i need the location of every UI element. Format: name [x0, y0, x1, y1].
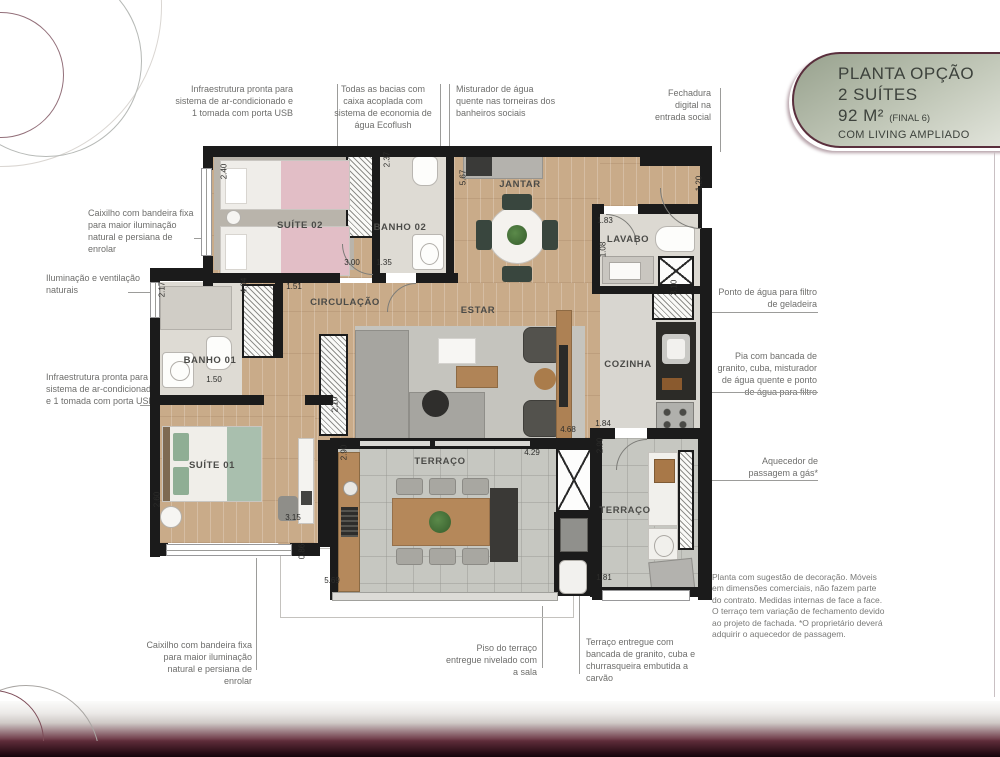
side-desk	[456, 366, 498, 388]
room-label-suite02: SUÍTE 02	[255, 220, 345, 231]
sink	[412, 234, 444, 270]
chair	[476, 220, 492, 250]
dimension: 2.10	[331, 392, 340, 418]
room-label-cozinha: COZINHA	[588, 359, 668, 370]
dimension: 3.00	[339, 258, 365, 267]
dimension: 1.08	[599, 237, 608, 263]
dimension: 0.86	[298, 539, 307, 565]
dimension: 3.10	[670, 275, 679, 301]
callout-infra-suite01: Infraestrutura pronta para sistema de ar…	[46, 372, 158, 408]
wall	[305, 395, 333, 405]
bed-suite02	[220, 160, 350, 210]
callout-bacias: Todas as bacias com caixa acoplada com s…	[330, 84, 436, 132]
pillow	[173, 467, 189, 495]
wall	[203, 146, 712, 157]
callout-caixilho-suite01: Caixilho com bandeira fixa para maior il…	[140, 640, 252, 688]
badge-area-note: (FINAL 6)	[889, 113, 930, 124]
badge-area: 92 M² (FINAL 6)	[838, 106, 1000, 126]
closet-suite01	[319, 334, 348, 436]
window-suite02	[201, 168, 212, 256]
bed-blanket	[281, 227, 349, 275]
wall	[592, 286, 700, 294]
coffee-table	[438, 338, 476, 364]
chair	[462, 548, 489, 565]
dimension: 1.50	[201, 375, 227, 384]
terrace-glass-rail	[332, 592, 558, 601]
column-window	[560, 518, 588, 552]
item	[654, 459, 675, 483]
bed-blanket	[281, 161, 349, 209]
room-label-banho01: BANHO 01	[170, 355, 250, 366]
callout-line	[712, 312, 818, 313]
tanque	[648, 528, 678, 560]
cuba	[343, 481, 358, 496]
lavabo-counter	[602, 256, 654, 284]
sliding-door	[360, 441, 430, 446]
basin	[420, 243, 439, 265]
wall	[647, 428, 700, 439]
basin	[609, 262, 641, 280]
pouf	[422, 390, 449, 417]
badge-area-value: 92 M²	[838, 106, 884, 125]
shower	[160, 286, 232, 330]
chair	[429, 478, 456, 495]
dimension: 1.84	[590, 419, 616, 428]
dimension: 3.15	[280, 513, 306, 522]
callout-iluminacao: Iluminação e ventilação naturais	[46, 273, 146, 297]
utility-column	[554, 512, 592, 556]
toilet	[412, 156, 438, 186]
room-label-suite01: SUÍTE 01	[172, 460, 252, 471]
chair	[502, 194, 532, 210]
dimension: 2.90	[340, 440, 349, 466]
dimension: 2.17	[158, 277, 167, 303]
dimension: 4.68	[555, 425, 581, 434]
callout-line	[720, 88, 721, 152]
wall	[700, 228, 712, 436]
wall	[275, 283, 283, 358]
desk	[298, 438, 314, 524]
plant	[429, 511, 451, 533]
dimension: 2.37	[383, 147, 392, 173]
dimension: 1.35	[371, 258, 397, 267]
nightstand	[226, 210, 241, 225]
cutting-board	[662, 378, 682, 390]
chair	[502, 266, 532, 282]
round-table	[160, 506, 182, 528]
wall	[152, 395, 264, 405]
room-label-banho02: BANHO 02	[360, 222, 440, 233]
callout-line	[712, 392, 818, 393]
terrace-counter	[338, 452, 360, 592]
churrasqueira	[341, 507, 358, 537]
basin	[559, 560, 587, 594]
wall	[446, 150, 454, 273]
plant	[507, 225, 527, 245]
tv	[559, 345, 568, 407]
callout-infra-suite02: Infraestrutura pronta para sistema de ar…	[175, 84, 293, 120]
wall	[698, 436, 712, 600]
chair	[542, 220, 558, 250]
callout-aquecedor: Aquecedor de passagem a gás*	[726, 456, 818, 480]
bed-suite02	[220, 226, 350, 276]
floor-plan: SUÍTE 02 BANHO 02 JANTAR LAVABO CIRCULAÇ…	[150, 140, 715, 620]
sofa	[355, 330, 409, 444]
dimension: 5.69	[319, 576, 345, 585]
wall	[203, 146, 213, 170]
wall	[330, 438, 592, 449]
dimension: 1.83	[592, 216, 618, 225]
bottom-band-light	[0, 701, 1000, 741]
dimension: 1.51	[281, 282, 307, 291]
callout-line	[712, 480, 818, 481]
laptop	[301, 491, 312, 505]
wall	[416, 273, 458, 283]
badge-tagline: COM LIVING AMPLIADO	[838, 129, 1000, 141]
room-label-estar: ESTAR	[438, 305, 518, 316]
disclaimer-text: Planta com sugestão de decoração. Móveis…	[712, 572, 888, 641]
wall	[640, 146, 702, 166]
bench	[490, 488, 518, 562]
sliding-door	[435, 441, 530, 446]
dimension: 4.94	[240, 273, 249, 299]
room-label-circulacao: CIRCULAÇÃO	[295, 297, 395, 308]
callout-piso-terraco: Piso do terraço entregue nivelado com a …	[440, 643, 537, 679]
service-sill	[602, 590, 690, 601]
basin	[654, 535, 674, 557]
callout-misturador: Misturador de água quente nas torneiras …	[456, 84, 562, 120]
bottom-band-dark	[0, 741, 1000, 757]
badge-subtitle: 2 SUÍTES	[838, 85, 1000, 105]
appliance	[466, 156, 492, 176]
room-label-terraco: TERRAÇO	[400, 456, 480, 467]
callout-terraco-entregue: Terraço entregue com bancada de granito,…	[586, 637, 698, 685]
dimension: 2.60	[153, 487, 162, 513]
dimension: 1.81	[591, 573, 617, 582]
callout-fechadura: Fechadura digital na entrada social	[645, 88, 711, 124]
badge-title: PLANTA OPÇÃO	[838, 64, 1000, 84]
pillow	[173, 433, 189, 461]
basin	[667, 339, 685, 359]
chair	[462, 478, 489, 495]
window-suite01	[166, 544, 292, 556]
sink-niche	[554, 554, 592, 596]
ventilation-panel	[678, 450, 694, 550]
dimension: 1.20	[695, 171, 704, 197]
callout-ponto-agua: Ponto de água para filtro de geladeira	[715, 287, 817, 311]
pillow	[225, 234, 247, 270]
plan-title-badge: PLANTA OPÇÃO 2 SUÍTES 92 M² (FINAL 6) CO…	[792, 52, 1000, 148]
dimension: 5.67	[459, 165, 468, 191]
room-label-jantar: JANTAR	[480, 179, 560, 190]
headboard	[163, 427, 170, 501]
dimension: 2.40	[220, 159, 229, 185]
chair	[429, 548, 456, 565]
chair	[396, 478, 423, 495]
wall	[203, 273, 340, 283]
right-edge-rule	[994, 152, 995, 697]
side-table	[534, 368, 556, 390]
brochure-page: PLANTA OPÇÃO 2 SUÍTES 92 M² (FINAL 6) CO…	[0, 0, 1000, 757]
dimension: 4.29	[519, 448, 545, 457]
room-label-terraco-servico: TERRAÇO	[585, 505, 665, 516]
dimension: 2.90	[596, 433, 605, 459]
chair	[396, 548, 423, 565]
shaft	[556, 448, 592, 512]
